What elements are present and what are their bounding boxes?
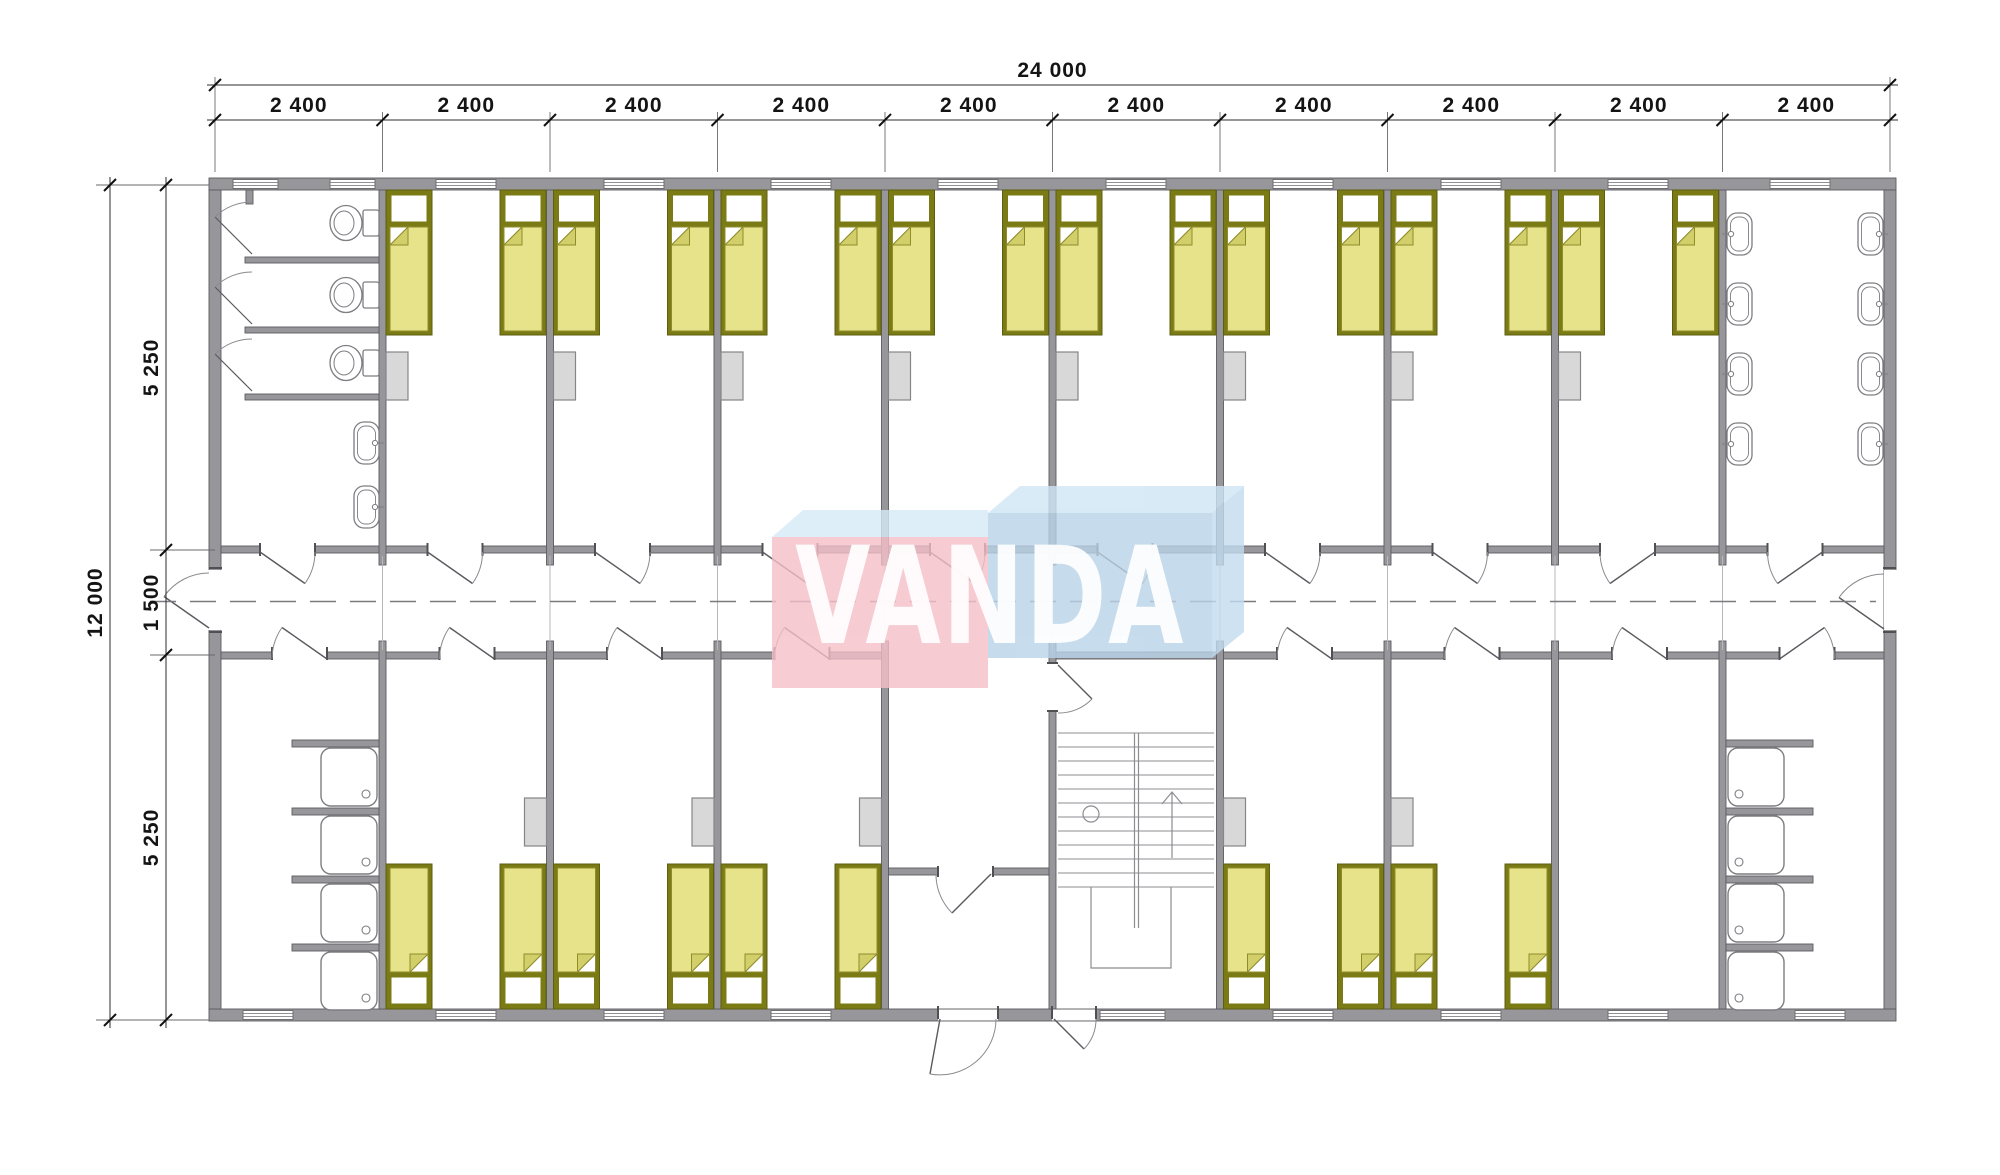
window [1106, 180, 1166, 189]
dimension-segment-height: 5 250 [140, 339, 163, 397]
door-leaf [1610, 552, 1655, 584]
window [243, 1011, 293, 1020]
sink-tap [372, 504, 377, 509]
wall-segment [292, 740, 379, 747]
bed [889, 190, 935, 335]
door-leaf [1839, 598, 1884, 630]
wall-segment [650, 546, 763, 553]
shower-tray [321, 816, 377, 874]
sink-tap [1876, 231, 1881, 236]
bed-pillow [1343, 977, 1379, 1004]
toilet [330, 206, 379, 241]
toilet-bowl-inner [334, 211, 354, 235]
bed [386, 864, 432, 1009]
door-leaf [428, 552, 473, 584]
sink-tap [1876, 301, 1881, 306]
wardrobe [1224, 798, 1246, 846]
bed [835, 864, 881, 1009]
wall-segment [1320, 546, 1433, 553]
bed [554, 864, 600, 1009]
wardrobe [721, 352, 743, 400]
bed-pillow [840, 195, 876, 222]
bed-pillow [673, 977, 709, 1004]
bed-pillow [505, 195, 541, 222]
shower-drain [362, 790, 370, 798]
wardrobe [1224, 352, 1246, 400]
wardrobe [525, 798, 547, 846]
door-opening [1265, 545, 1320, 554]
wardrobe [860, 798, 882, 846]
door-swing [936, 874, 952, 913]
door-leaf [952, 874, 991, 913]
wall-segment [1726, 808, 1813, 815]
window [1273, 1011, 1333, 1020]
bed-pillow [1510, 977, 1546, 1004]
dimension-segment-width: 2 400 [270, 94, 328, 117]
bed [500, 190, 546, 335]
wardrobe [1559, 352, 1581, 400]
sink [1858, 283, 1888, 325]
sink [1722, 353, 1752, 395]
wall-segment [1726, 876, 1813, 883]
wall-segment [292, 808, 379, 815]
bed-pillow [1229, 977, 1265, 1004]
door-leaf [1265, 552, 1310, 584]
bed [1391, 190, 1437, 335]
bed [1338, 190, 1384, 335]
bed-pillow [1678, 195, 1714, 222]
bed-pillow [391, 195, 427, 222]
stairs-layer [1058, 733, 1214, 968]
wall-segment [483, 546, 596, 553]
toilet-tank [363, 210, 379, 236]
dimension-segment-width: 2 400 [437, 94, 495, 117]
door-swing [1478, 552, 1488, 584]
bed [721, 864, 767, 1009]
toilet [330, 278, 379, 313]
toilet-bowl-inner [334, 351, 354, 375]
door-swing [1310, 552, 1320, 584]
sink-tap [1728, 371, 1733, 376]
wall-segment [1823, 546, 1885, 553]
shower-drain [1735, 790, 1743, 798]
bed-pillow [726, 195, 762, 222]
door-opening [1768, 545, 1823, 554]
sink-tap [1728, 301, 1733, 306]
window [1770, 180, 1830, 189]
door-opening [260, 545, 315, 554]
bed [1056, 190, 1102, 335]
bed [1170, 190, 1216, 335]
window [771, 180, 831, 189]
bed-pillow [894, 195, 930, 222]
bed-pillow [1396, 195, 1432, 222]
door-opening [1600, 545, 1655, 554]
door-swing [1084, 1019, 1096, 1049]
sink-tap [1728, 441, 1733, 446]
bed [835, 190, 881, 335]
bed [668, 864, 714, 1009]
shower-tray [321, 952, 377, 1010]
window [771, 1011, 831, 1020]
shower-drain [362, 994, 370, 1002]
wardrobe [1056, 352, 1078, 400]
door-leaf [1433, 552, 1478, 584]
bed [554, 190, 600, 335]
sink [1858, 423, 1888, 465]
shower-tray [1728, 816, 1784, 874]
dimension-segment-height: 5 250 [140, 809, 163, 867]
window [436, 1011, 496, 1020]
stair-landing [1091, 887, 1171, 968]
sink-tap [1728, 231, 1733, 236]
wall-segment [221, 546, 260, 553]
wall-segment [379, 641, 386, 1009]
door-leaf [1778, 552, 1823, 584]
stair-start-marker [1083, 806, 1099, 822]
bed-pillow [1564, 195, 1600, 222]
bed-pillow [391, 977, 427, 1004]
wall-segment [714, 641, 721, 1009]
door-opening [428, 545, 483, 554]
wardrobe [889, 352, 911, 400]
window [1795, 1011, 1845, 1020]
sink-tap [372, 440, 377, 445]
wardrobe [692, 798, 714, 846]
door-leaf [260, 552, 305, 584]
bed-pillow [1175, 195, 1211, 222]
wall-segment [1655, 546, 1768, 553]
sink [1722, 213, 1752, 255]
door-opening [938, 1010, 998, 1021]
watermark-blue-top-face [988, 486, 1244, 513]
dimension-segment-width: 2 400 [772, 94, 830, 117]
window [1100, 1011, 1165, 1020]
sink [1722, 423, 1752, 465]
watermark-blue-side-face [1212, 486, 1244, 658]
door-leaf [1054, 1019, 1084, 1049]
bed-pillow [1008, 195, 1044, 222]
shower-drain [362, 926, 370, 934]
shower-tray [1728, 884, 1784, 942]
bed-pillow [1343, 195, 1379, 222]
wall-segment [1049, 711, 1056, 1009]
wall-segment [1726, 740, 1813, 747]
dimension-segment-width: 2 400 [940, 94, 998, 117]
wardrobe [1391, 798, 1413, 846]
sink [1858, 213, 1888, 255]
wall-segment [315, 546, 428, 553]
shower-drain [1735, 858, 1743, 866]
door-leaf [595, 552, 640, 584]
door-swing [1058, 699, 1092, 713]
bed [1224, 864, 1270, 1009]
wardrobe [554, 352, 576, 400]
door-opening [595, 545, 650, 554]
sink [1722, 283, 1752, 325]
shower-tray [321, 884, 377, 942]
dimension-segment-width: 2 400 [605, 94, 663, 117]
window [436, 180, 496, 189]
door-opening [209, 570, 222, 630]
window [233, 180, 278, 189]
window [330, 180, 375, 189]
wall-segment [245, 257, 379, 263]
window [604, 180, 664, 189]
bed [1391, 864, 1437, 1009]
bed [721, 190, 767, 335]
wall-segment [1726, 944, 1813, 951]
bed-pillow [1229, 195, 1265, 222]
wall-segment [547, 190, 554, 565]
bed-pillow [1061, 195, 1097, 222]
sink [1858, 353, 1888, 395]
wall-segment [882, 190, 889, 565]
bed [1559, 190, 1605, 335]
door-opening [1884, 570, 1897, 630]
dimension-segment-width: 2 400 [1275, 94, 1333, 117]
dimension-segment-width: 2 400 [1442, 94, 1500, 117]
bed-pillow [726, 977, 762, 1004]
dimension-total-width: 24 000 [1017, 59, 1087, 82]
wall-segment [245, 327, 379, 333]
bed [386, 190, 432, 335]
dimension-segment-width: 2 400 [1777, 94, 1835, 117]
bed [500, 864, 546, 1009]
wall-segment [379, 190, 386, 565]
wall-segment [1552, 641, 1559, 1009]
bed-pillow [505, 977, 541, 1004]
wall-segment [1217, 641, 1224, 1009]
shower-drain [362, 858, 370, 866]
wardrobe [386, 352, 408, 400]
watermark: VANDA [772, 486, 1244, 688]
bed-pillow [1396, 977, 1432, 1004]
wall-segment [1719, 641, 1726, 1009]
window [1608, 180, 1668, 189]
bed [1003, 190, 1049, 335]
wall-segment [1835, 652, 1885, 659]
wall-segment [1552, 190, 1559, 565]
wall-segment [1384, 641, 1391, 1009]
wall-segment [292, 944, 379, 951]
door-swing [305, 552, 315, 584]
dimension-segment-width: 2 400 [1107, 94, 1165, 117]
door-swing [473, 552, 483, 584]
bed-pillow [559, 195, 595, 222]
bed-pillow [673, 195, 709, 222]
wall-segment [889, 868, 939, 875]
door-swing [1839, 574, 1884, 598]
wall-segment [1488, 546, 1601, 553]
sink-tap [1876, 441, 1881, 446]
door-swing [640, 552, 650, 584]
wall-segment [245, 394, 379, 400]
shower-drain [1735, 994, 1743, 1002]
door-swing [164, 573, 209, 597]
dimension-segment-width: 2 400 [1610, 94, 1668, 117]
bed [1505, 190, 1551, 335]
wall-segment [1384, 190, 1391, 565]
bed [1673, 190, 1719, 335]
door-opening [1052, 1010, 1096, 1021]
toilet-bowl-inner [334, 283, 354, 307]
wall-segment [292, 876, 379, 883]
wall-segment [714, 190, 721, 565]
bed-pillow [1510, 195, 1546, 222]
bed-pillow [840, 977, 876, 1004]
door-swing [1768, 552, 1778, 584]
window [1273, 180, 1333, 189]
bed [1505, 864, 1551, 1009]
shower-tray [1728, 748, 1784, 806]
floor-plan-canvas: 24 0002 4002 4002 4002 4002 4002 4002 40… [0, 0, 2000, 1175]
watermark-text: VANDA [795, 518, 1185, 675]
wall-segment [1719, 190, 1726, 565]
door-swing [930, 1019, 996, 1075]
wall-segment [993, 868, 1049, 875]
window [1441, 1011, 1501, 1020]
bed-pillow [559, 977, 595, 1004]
window [1608, 1011, 1668, 1020]
door-opening [1433, 545, 1488, 554]
window [604, 1011, 664, 1020]
window [938, 180, 998, 189]
bed [1338, 864, 1384, 1009]
dimension-total-height: 12 000 [84, 567, 107, 637]
door-leaf [930, 1019, 940, 1074]
door-swing [1600, 552, 1610, 584]
shower-tray [1728, 952, 1784, 1010]
toilet-tank [363, 282, 379, 308]
sink-tap [1876, 371, 1881, 376]
shower-drain [1735, 926, 1743, 934]
floor-plan-drawing: 24 0002 4002 4002 4002 4002 4002 4002 40… [0, 0, 2000, 1175]
window [1441, 180, 1501, 189]
dimension-segment-height: 1 500 [140, 574, 163, 632]
toilet-tank [363, 350, 379, 376]
toilet [330, 346, 379, 381]
wall-segment [221, 652, 272, 659]
bed [668, 190, 714, 335]
bed [1224, 190, 1270, 335]
wall-segment [547, 641, 554, 1009]
shower-tray [321, 748, 377, 806]
wall-segment [882, 641, 889, 1009]
wardrobe [1391, 352, 1413, 400]
